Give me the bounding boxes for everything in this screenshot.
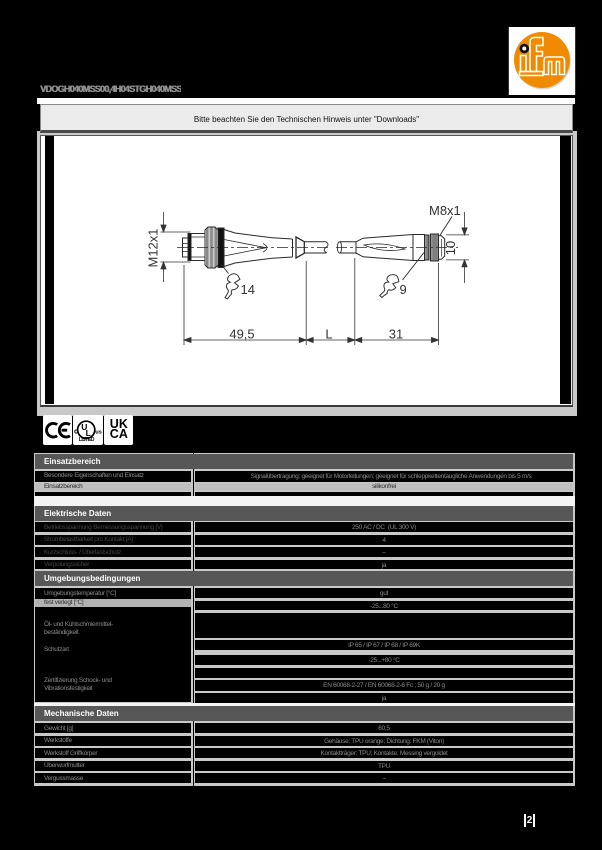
svg-text:LISTED: LISTED	[79, 437, 95, 443]
svg-text:9: 9	[400, 282, 407, 297]
svg-text:10: 10	[443, 241, 458, 255]
svg-text:31: 31	[389, 327, 403, 342]
svg-text:49,5: 49,5	[229, 327, 254, 342]
svg-text:14: 14	[241, 282, 255, 297]
svg-text:us: us	[95, 429, 101, 435]
svg-text:c: c	[74, 428, 78, 435]
svg-text:M12x1: M12x1	[146, 228, 161, 267]
svg-text:M8x1: M8x1	[429, 203, 461, 218]
svg-text:L: L	[325, 327, 332, 342]
